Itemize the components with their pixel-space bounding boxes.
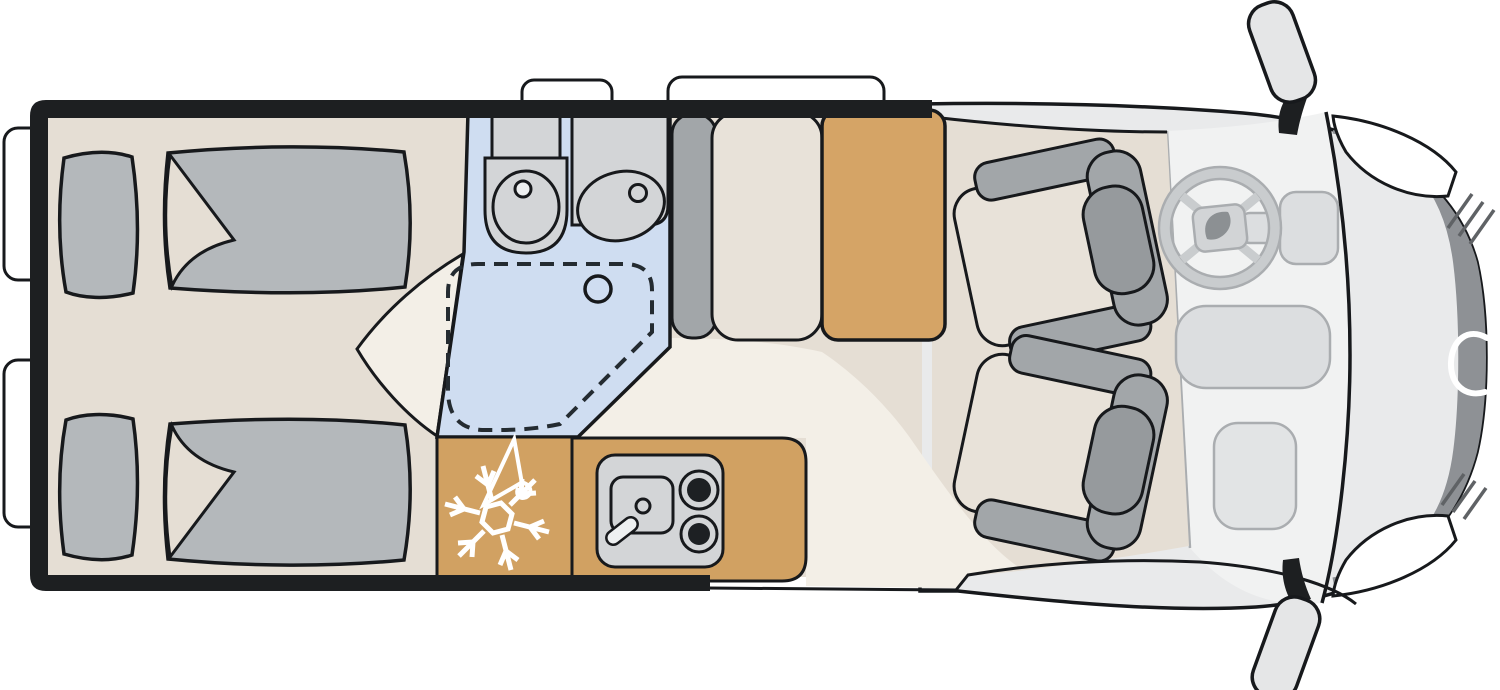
dinette-table <box>822 110 945 340</box>
dash-panel <box>1280 192 1338 264</box>
single-bed-top <box>60 147 410 298</box>
single-bed-bottom <box>60 415 410 566</box>
center-console <box>1176 306 1330 388</box>
bench-backrest <box>672 114 716 338</box>
bench-seat <box>712 112 822 340</box>
washbasin-tap <box>515 181 531 197</box>
floorplan-canvas <box>0 0 1500 690</box>
floorplan-page <box>0 0 1500 690</box>
kitchen-sink-hob-unit <box>597 455 723 567</box>
glovebox <box>1214 423 1296 529</box>
door-sill-line <box>708 588 956 590</box>
washbasin <box>485 112 567 253</box>
sink-drain <box>636 499 650 513</box>
toilet-flush-button <box>630 185 647 202</box>
